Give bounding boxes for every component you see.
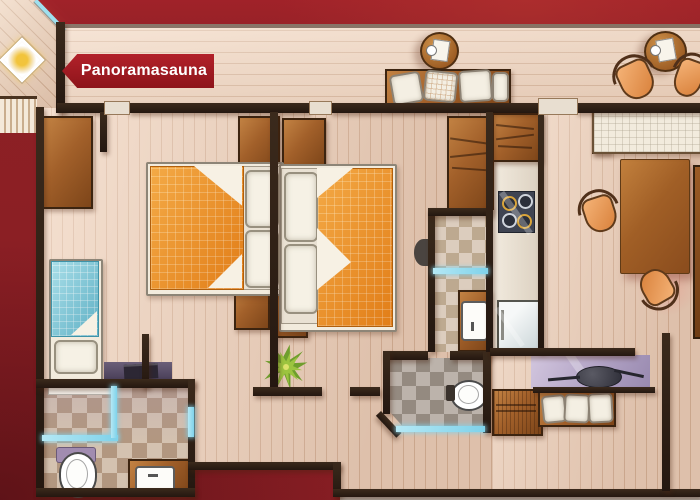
wall [188,379,195,496]
checkered-cushion [422,69,458,103]
pillow [54,340,98,374]
wall [486,112,493,352]
cup [650,45,661,56]
pillow [284,172,318,242]
faucet [471,322,474,331]
nightstand [282,118,326,168]
wall [428,208,435,352]
sideboard [492,389,543,436]
wall [490,348,635,356]
wall [533,387,655,393]
burner [518,194,533,209]
sauna-bench [0,96,37,133]
wall [662,333,670,491]
sauna-sign-label: Panoramasauna [81,62,207,80]
wall [538,112,544,352]
sideboard-line [496,404,536,406]
toilet-seat [66,459,88,489]
wall [100,112,107,152]
floor-plan: Panoramasauna [0,0,700,500]
bench-cushion [458,69,493,103]
wall [483,351,491,433]
terrace-door [309,101,332,115]
sink [461,301,488,341]
faucet [148,474,158,477]
sideboard-grain [494,391,541,434]
wall [270,112,278,392]
wall [383,351,390,414]
fridge-shine [494,307,524,348]
wall [333,489,700,497]
sauna-sign: Panoramasauna [62,54,214,88]
sliding-door [538,98,578,115]
wall [576,103,700,113]
daybed [592,106,700,154]
bench-cushion [492,72,509,102]
wall [350,387,380,396]
curtain-edge [693,165,700,339]
terrace-door [104,101,130,115]
wall [57,103,104,113]
laptop [124,363,159,380]
toilet-seat [458,385,479,404]
glass-wall [396,426,485,432]
bench-cushion [587,392,614,423]
fridge [497,300,541,354]
wall [36,488,195,497]
dining-table [620,159,690,274]
cup [426,45,437,56]
wall [330,103,538,113]
shower-glass [433,268,488,274]
wall [128,103,309,113]
wardrobe [42,116,93,209]
wall [253,387,322,396]
sideboard-line [496,410,536,412]
terrace-edge-shadow [63,24,700,28]
sauna-wall [56,22,65,113]
wall [428,208,493,216]
shower-glass [111,386,117,438]
plant-center [283,364,289,370]
pillow [284,244,318,314]
toilet-hinge [446,385,455,401]
shower-glass [42,435,118,441]
wall [188,462,340,470]
glass-door [188,407,194,437]
cooktop [498,191,535,233]
bench-cushion [389,71,425,107]
